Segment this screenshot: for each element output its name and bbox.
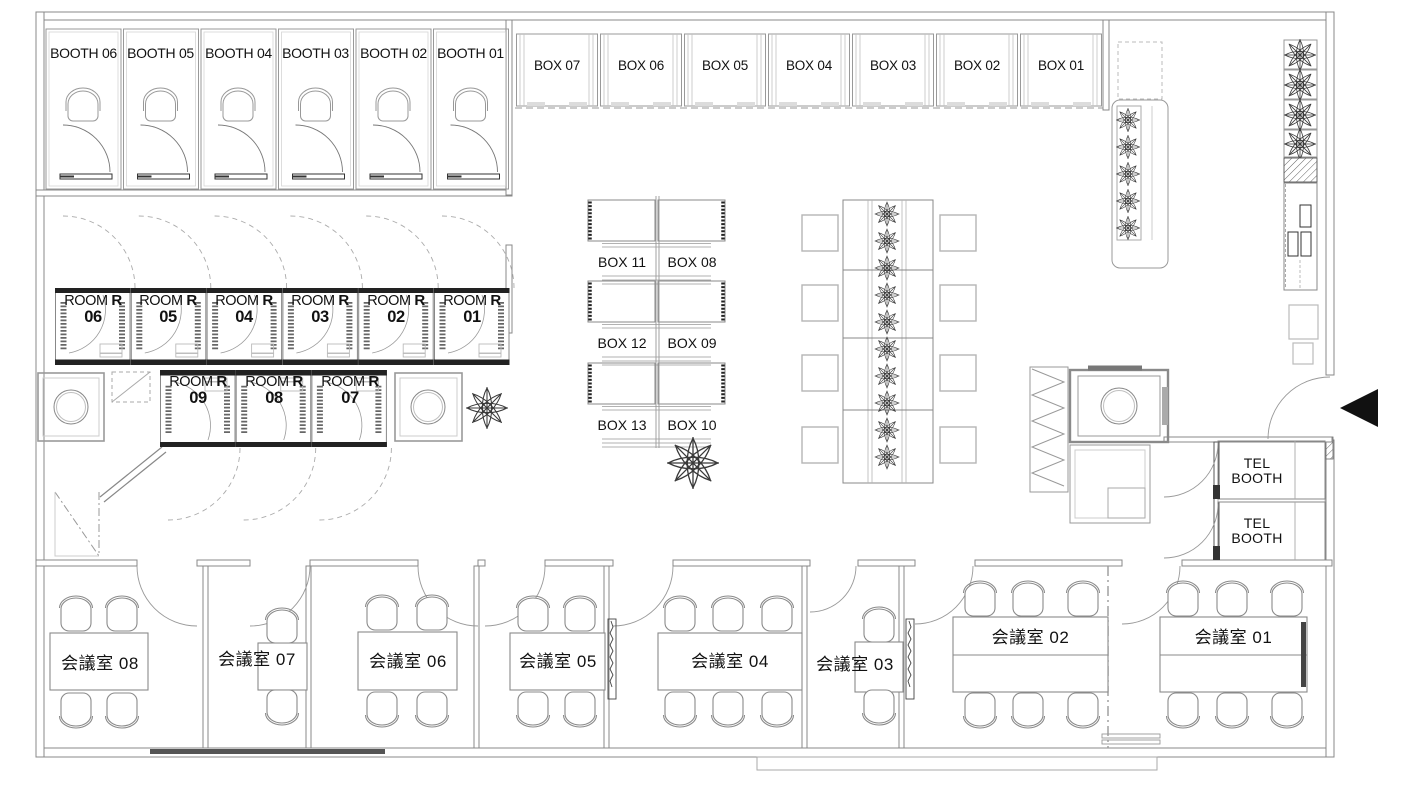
tel-booth-label: TELBOOTH: [1222, 510, 1292, 552]
booth-label: BOOTH 04: [200, 44, 277, 62]
planter-strip: [870, 197, 903, 473]
room-label: ROOM R05: [132, 293, 204, 327]
meeting-room-label: 会議室 04: [656, 652, 804, 672]
room-label: ROOM R06: [57, 293, 129, 327]
round-table-left: [38, 373, 104, 441]
center-box-label: BOX 12: [590, 333, 654, 353]
center-box-label: BOX 11: [590, 252, 654, 272]
booth-label: BOOTH 02: [355, 44, 432, 62]
room-label: ROOM R08: [238, 374, 310, 408]
meeting-room-label: 会議室 01: [1160, 628, 1307, 648]
tel-booth-label: TELBOOTH: [1222, 450, 1292, 492]
box-label: BOX 05: [683, 58, 767, 74]
right-cabinet: [1284, 183, 1317, 290]
dashed-cabinet: [112, 372, 150, 402]
meeting-room-label: 会議室 06: [356, 652, 460, 672]
meeting-room-label: 会議室 03: [806, 655, 904, 675]
box-label: BOX 06: [599, 58, 683, 74]
entrance-arrow-icon: [1340, 389, 1378, 427]
round-table-right: [395, 373, 462, 441]
room-label: ROOM R04: [208, 293, 280, 327]
exterior-ledge: [757, 757, 1157, 770]
box-label: BOX 03: [851, 58, 935, 74]
plant: [658, 428, 728, 498]
meeting-room-label: 会議室 05: [506, 652, 610, 672]
meeting-room-label: 会議室 08: [48, 654, 152, 674]
room-label: ROOM R01: [436, 293, 508, 327]
box-label: BOX 04: [767, 58, 851, 74]
plant: [459, 380, 515, 436]
box-label: BOX 02: [935, 58, 1019, 74]
hatched-unit: [1284, 158, 1317, 182]
booth-label: BOOTH 03: [277, 44, 354, 62]
room-label: ROOM R02: [360, 293, 432, 327]
right-side-box-small: [1293, 343, 1313, 364]
center-box-label: BOX 09: [660, 333, 724, 353]
long-table: [843, 200, 933, 483]
corner-counter: [1070, 445, 1150, 523]
zigzag-shelf: [1030, 367, 1068, 492]
center-box-label: BOX 08: [660, 252, 724, 272]
room-label: ROOM R03: [284, 293, 356, 327]
diagonal-wall: [100, 447, 166, 502]
room-row-upper: [55, 216, 514, 365]
wall-monitor: [906, 619, 914, 699]
room-label: ROOM R09: [162, 374, 234, 408]
meeting-room-label: 会議室 02: [953, 628, 1108, 648]
steps-detail: [1102, 734, 1160, 744]
booth-label: BOOTH 05: [122, 44, 199, 62]
entrance-door-arc: [1268, 377, 1330, 439]
center-box-area: [588, 196, 725, 448]
long-table-stools: [802, 215, 976, 463]
booth-label: BOOTH 01: [432, 44, 509, 62]
corner-table: [1070, 366, 1168, 443]
floor-plan: BOOTH 06 BOOTH 05 BOOTH 04 BOOTH 03 BOOT…: [0, 0, 1416, 788]
right-side-box: [1289, 305, 1318, 339]
center-box-label: BOX 10: [660, 415, 724, 435]
closet-dashdot: [55, 492, 99, 556]
bottom-wall-dark-segment: [150, 749, 385, 754]
room-label: ROOM R07: [314, 374, 386, 408]
meeting-room-label: 会議室 07: [207, 650, 307, 670]
center-box-label: BOX 13: [590, 415, 654, 435]
box-label: BOX 01: [1019, 58, 1103, 74]
box-label: BOX 07: [515, 58, 599, 74]
booth-label: BOOTH 06: [45, 44, 122, 62]
